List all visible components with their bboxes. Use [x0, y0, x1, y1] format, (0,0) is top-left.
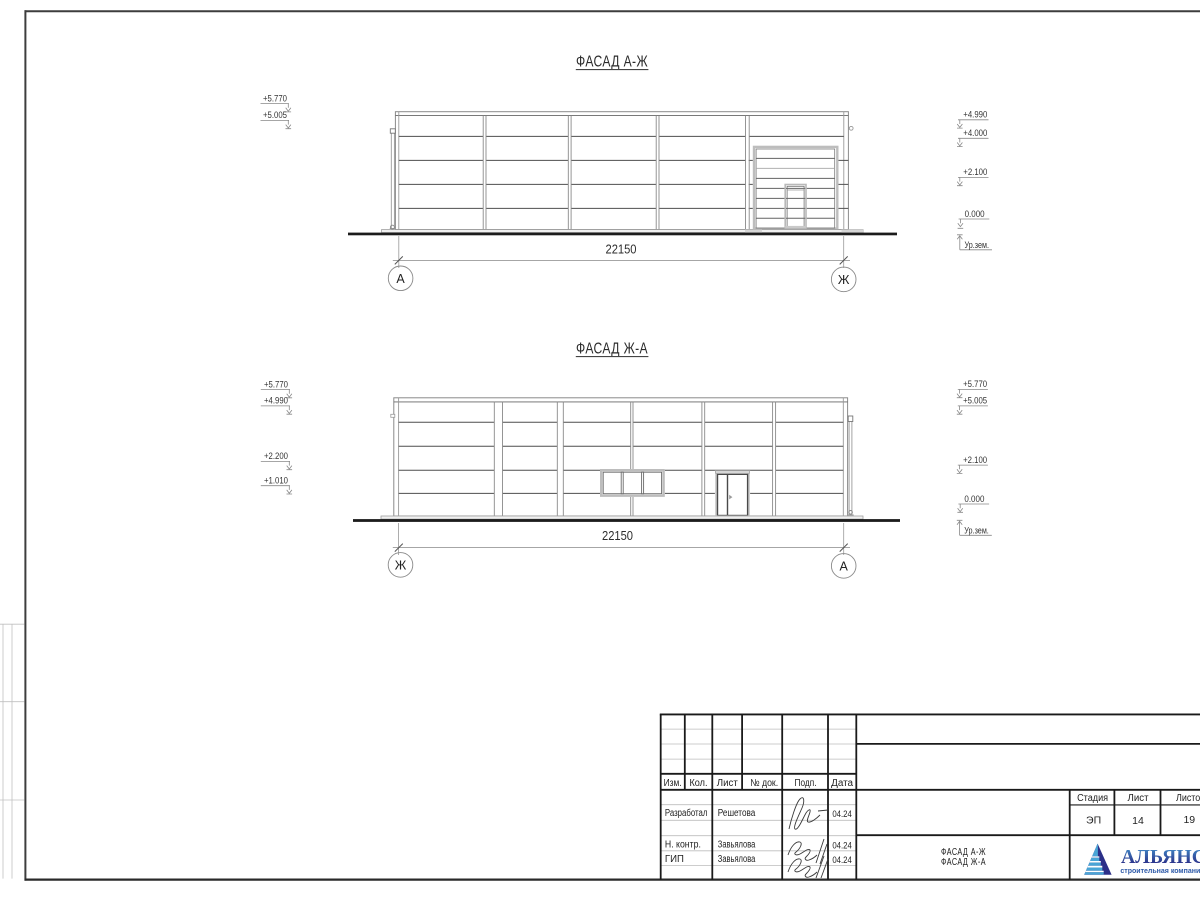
svg-text:ФАСАД Ж-А: ФАСАД Ж-А — [941, 857, 986, 868]
svg-text:Разработал: Разработал — [665, 807, 708, 819]
svg-text:Ур.зем.: Ур.зем. — [965, 240, 990, 250]
svg-text:Н. контр.: Н. контр. — [665, 839, 701, 850]
svg-text:Ур.зем.: Ур.зем. — [964, 525, 989, 535]
svg-text:строительная компания: строительная компания — [1120, 868, 1200, 875]
svg-text:А: А — [840, 560, 849, 574]
svg-text:А: А — [396, 272, 405, 286]
svg-text:Лист: Лист — [717, 778, 738, 789]
svg-text:+5.770: +5.770 — [264, 379, 288, 390]
svg-text:Листов: Листов — [1176, 793, 1200, 804]
svg-text:ЭП: ЭП — [1086, 815, 1101, 827]
svg-text:+5.770: +5.770 — [263, 93, 287, 104]
svg-text:+4.000: +4.000 — [963, 128, 987, 139]
svg-text:+2.200: +2.200 — [264, 451, 288, 462]
svg-text:0.000: 0.000 — [965, 209, 985, 220]
svg-text:+5.005: +5.005 — [963, 396, 987, 407]
svg-text:+2.100: +2.100 — [963, 167, 987, 178]
svg-text:Завьялова: Завьялова — [718, 839, 756, 850]
svg-text:№ док.: № док. — [750, 778, 778, 789]
svg-text:Решетова: Решетова — [718, 808, 756, 819]
svg-text:Подп.: Подп. — [795, 778, 817, 789]
svg-text:+4.990: +4.990 — [264, 396, 288, 407]
svg-text:+4.990: +4.990 — [963, 110, 987, 121]
svg-text:Лист: Лист — [1128, 793, 1149, 804]
svg-text:22150: 22150 — [606, 242, 637, 257]
svg-text:ФАСАД А-Ж: ФАСАД А-Ж — [576, 54, 648, 71]
svg-text:+5.770: +5.770 — [963, 379, 987, 390]
svg-text:22150: 22150 — [602, 528, 633, 543]
svg-text:0.000: 0.000 — [964, 494, 984, 505]
svg-text:+2.100: +2.100 — [963, 455, 987, 466]
svg-text:ФАСАД Ж-А: ФАСАД Ж-А — [576, 341, 648, 358]
svg-text:ГИП: ГИП — [665, 854, 684, 865]
svg-text:04.24: 04.24 — [832, 840, 852, 851]
svg-text:04.24: 04.24 — [832, 809, 852, 820]
svg-text:Ж: Ж — [838, 273, 850, 287]
svg-text:14: 14 — [1132, 815, 1144, 827]
svg-text:Изм.: Изм. — [664, 778, 682, 789]
svg-text:19: 19 — [1183, 814, 1195, 826]
svg-text:+1.010: +1.010 — [264, 476, 288, 487]
svg-text:Дата: Дата — [831, 778, 853, 789]
svg-text:Ж: Ж — [395, 559, 407, 573]
svg-text:Завьялова: Завьялова — [718, 854, 756, 865]
svg-text:Стадия: Стадия — [1077, 793, 1108, 804]
svg-text:04.24: 04.24 — [832, 855, 852, 866]
svg-text:АЛЬЯНС: АЛЬЯНС — [1121, 846, 1200, 868]
svg-text:+5.005: +5.005 — [263, 110, 287, 121]
svg-text:Кол.: Кол. — [690, 778, 708, 789]
